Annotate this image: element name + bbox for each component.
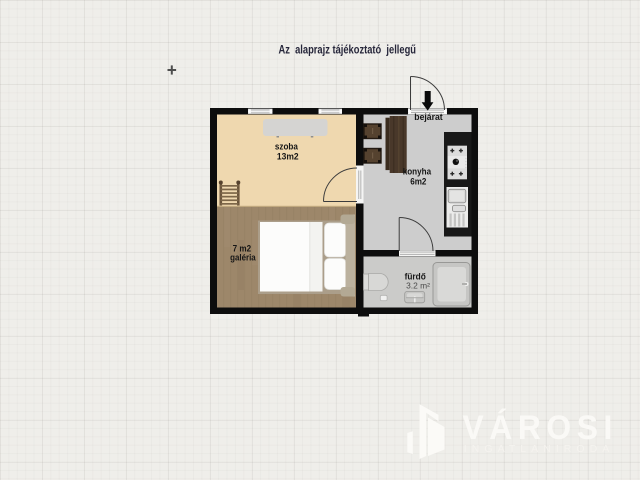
svg-text:VÁROSI: VÁROSI [463, 409, 619, 447]
svg-text:galéria: galéria [230, 253, 256, 264]
svg-text:3.2 m²: 3.2 m² [406, 282, 430, 291]
svg-text:INGATLANIRODA: INGATLANIRODA [464, 443, 615, 455]
svg-text:Az alaprajz tájékoztató jell: Az alaprajz tájékoztató jellegű [279, 42, 417, 56]
svg-text:6m2: 6m2 [410, 176, 426, 187]
svg-text:13m2: 13m2 [277, 151, 299, 162]
svg-text:bejárat: bejárat [414, 112, 443, 123]
